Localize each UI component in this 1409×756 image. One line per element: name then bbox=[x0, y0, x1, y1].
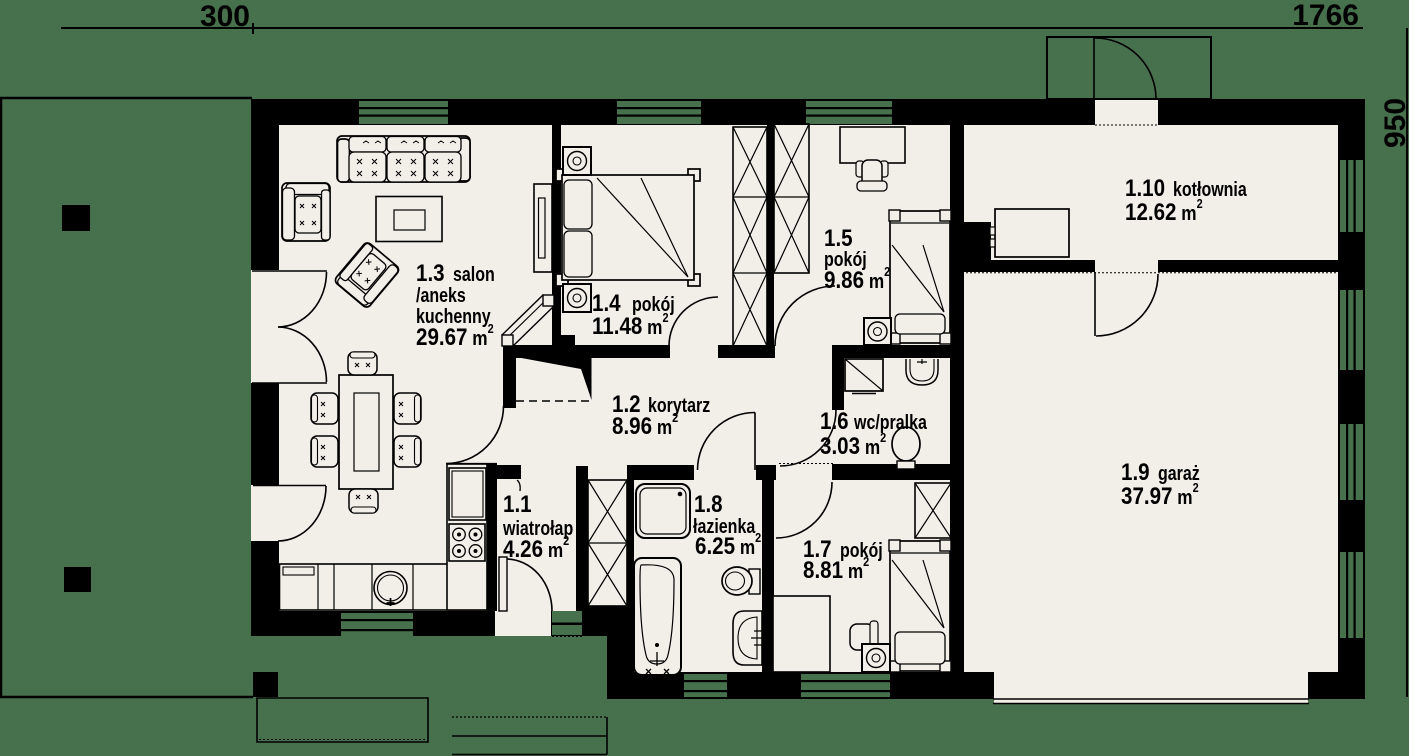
svg-text:1.8: 1.8 bbox=[694, 490, 723, 517]
svg-text:/aneks: /aneks bbox=[416, 284, 466, 306]
svg-text:korytarz: korytarz bbox=[648, 394, 710, 416]
svg-text:kotłownia: kotłownia bbox=[1173, 178, 1248, 200]
svg-text:salon: salon bbox=[453, 263, 495, 285]
svg-text:300: 300 bbox=[200, 0, 250, 33]
svg-text:pokój: pokój bbox=[840, 539, 883, 561]
svg-text:1.1: 1.1 bbox=[503, 490, 532, 517]
svg-text:1.3: 1.3 bbox=[416, 259, 445, 286]
svg-text:1766: 1766 bbox=[1292, 0, 1359, 32]
svg-text:wc/pralka: wc/pralka bbox=[853, 411, 928, 433]
svg-text:950: 950 bbox=[1379, 98, 1409, 148]
svg-text:1.6: 1.6 bbox=[820, 407, 849, 434]
